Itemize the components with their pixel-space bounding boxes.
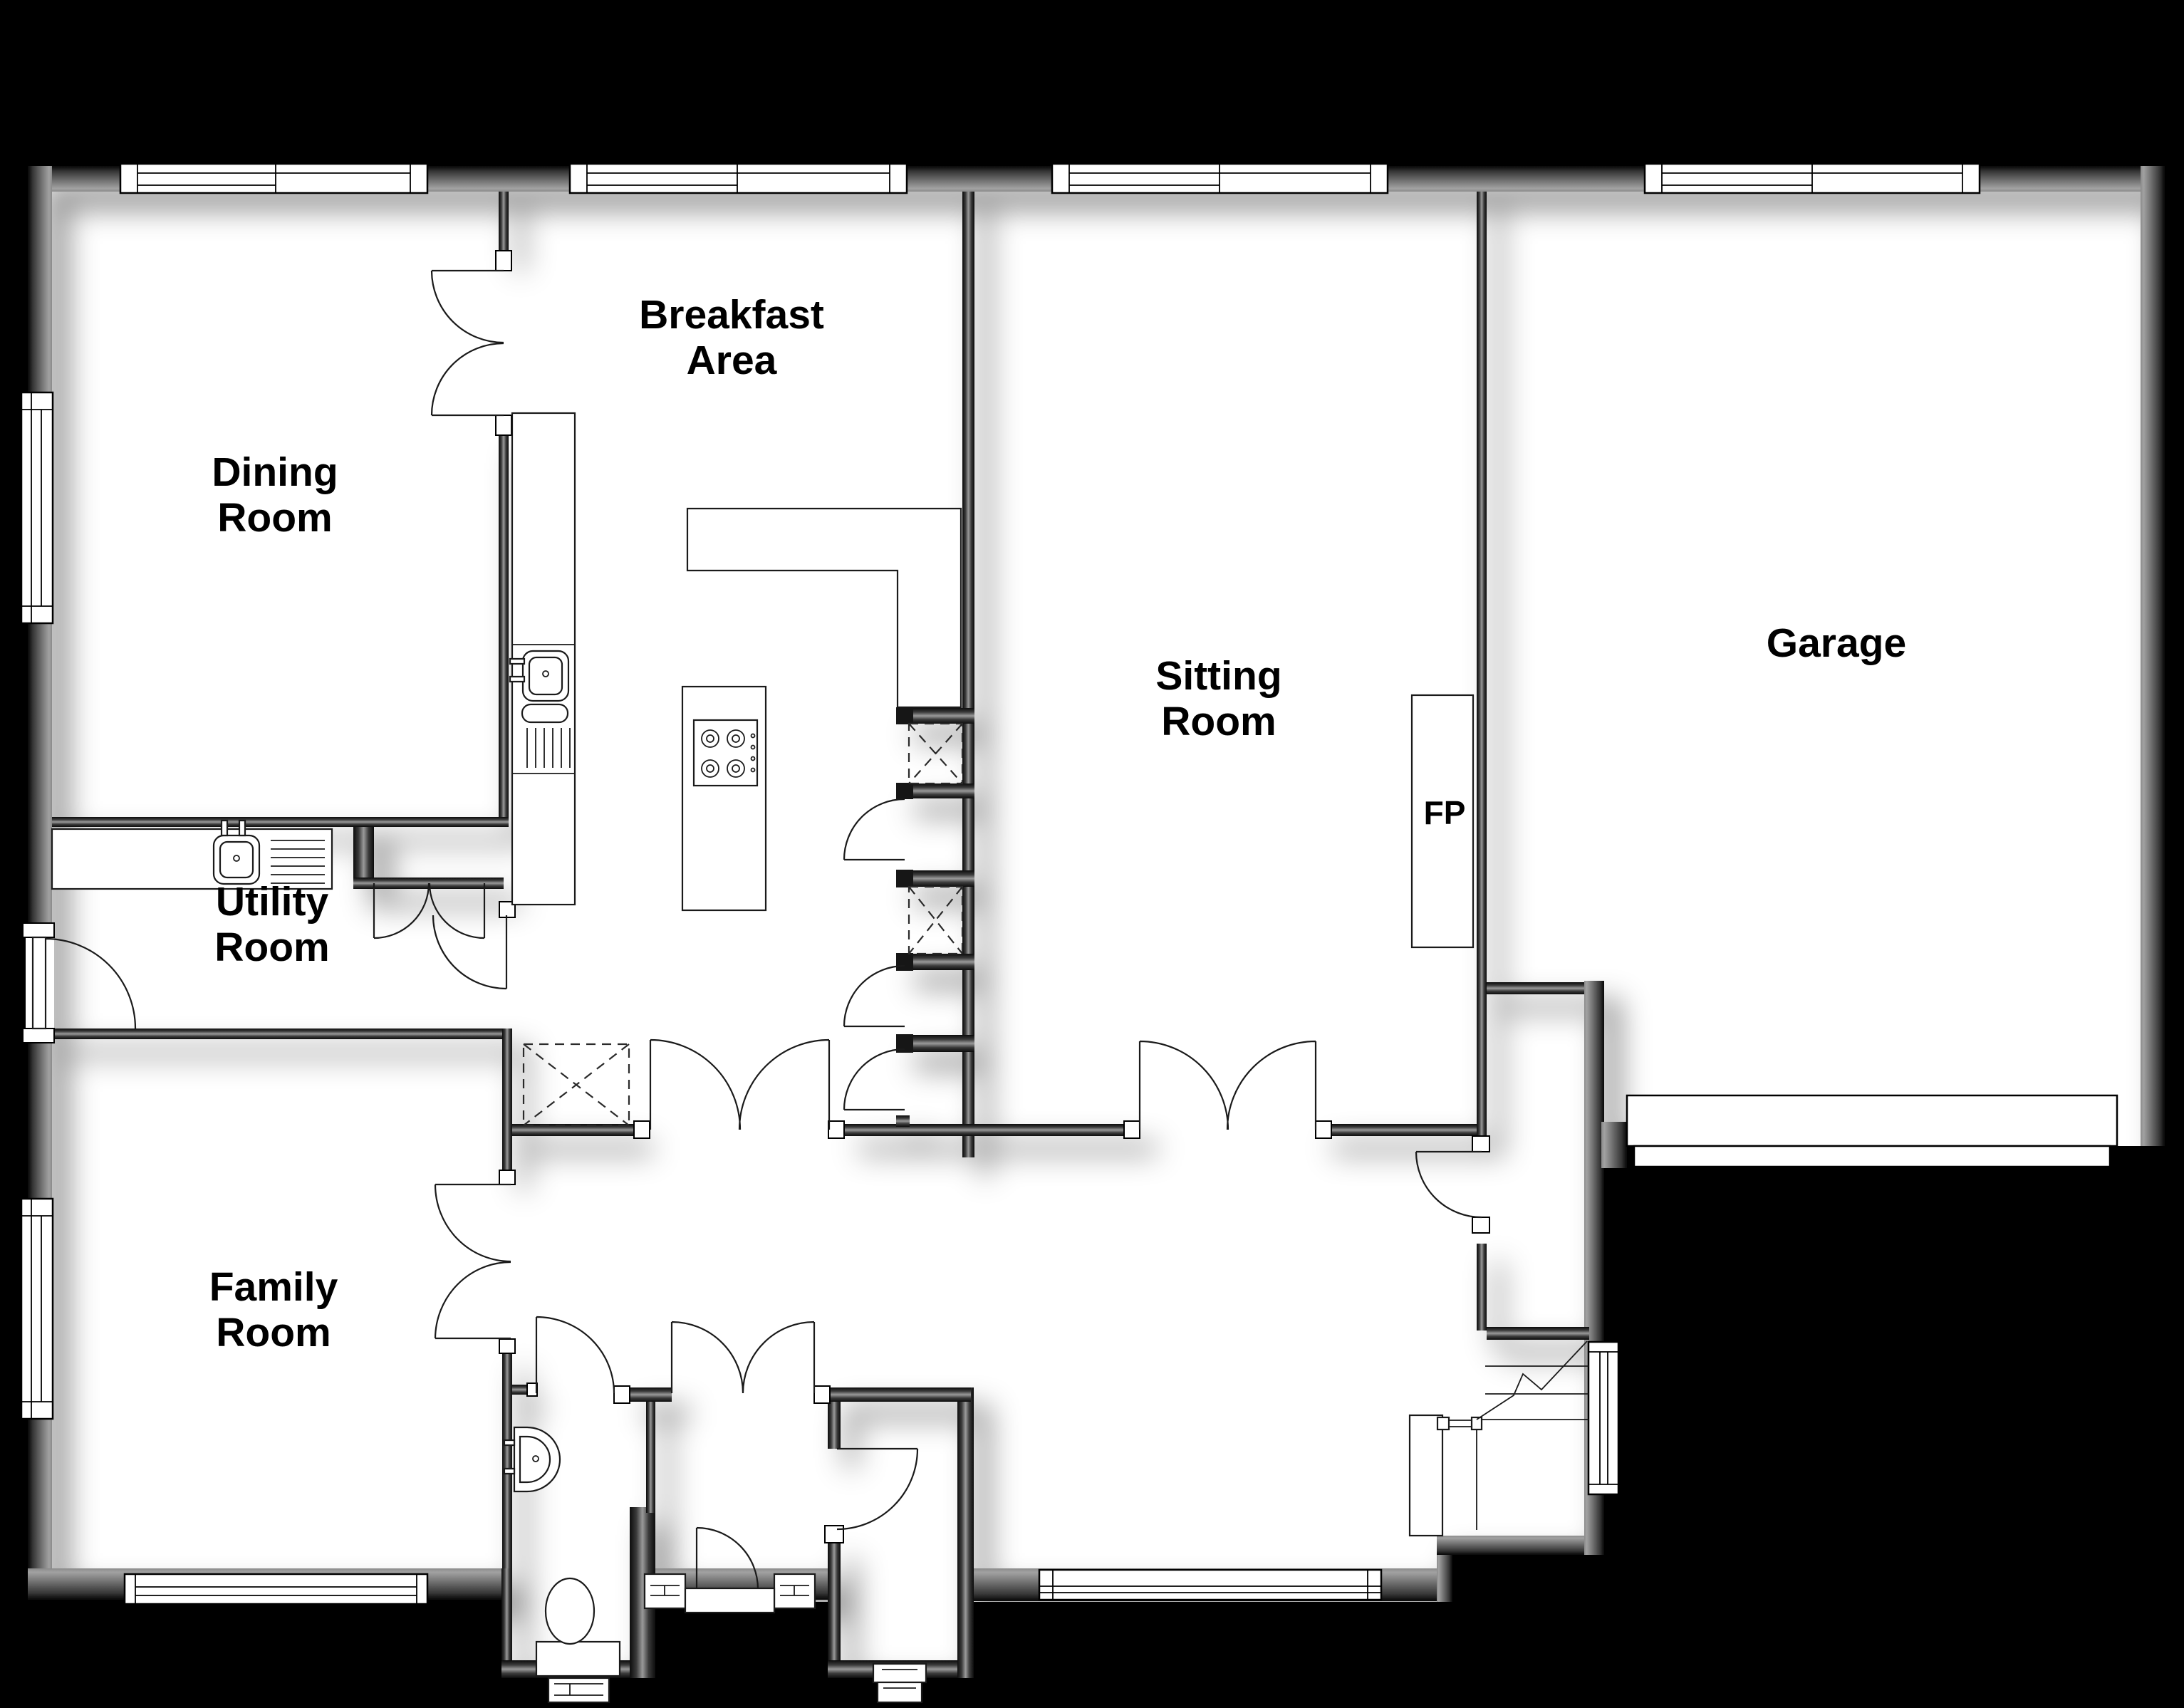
svg-text:FP: FP: [1424, 794, 1466, 831]
svg-text:Breakfast: Breakfast: [639, 292, 824, 338]
svg-text:Dining: Dining: [212, 449, 338, 495]
svg-text:Garage: Garage: [1767, 620, 1906, 666]
svg-text:Room: Room: [1161, 699, 1276, 744]
svg-text:Utility: Utility: [216, 879, 329, 925]
svg-text:Room: Room: [217, 495, 332, 541]
svg-text:Sitting: Sitting: [1155, 653, 1281, 699]
svg-text:Family: Family: [209, 1264, 338, 1310]
svg-text:Room: Room: [214, 925, 329, 970]
svg-text:Room: Room: [216, 1310, 331, 1355]
svg-text:Area: Area: [687, 338, 778, 383]
